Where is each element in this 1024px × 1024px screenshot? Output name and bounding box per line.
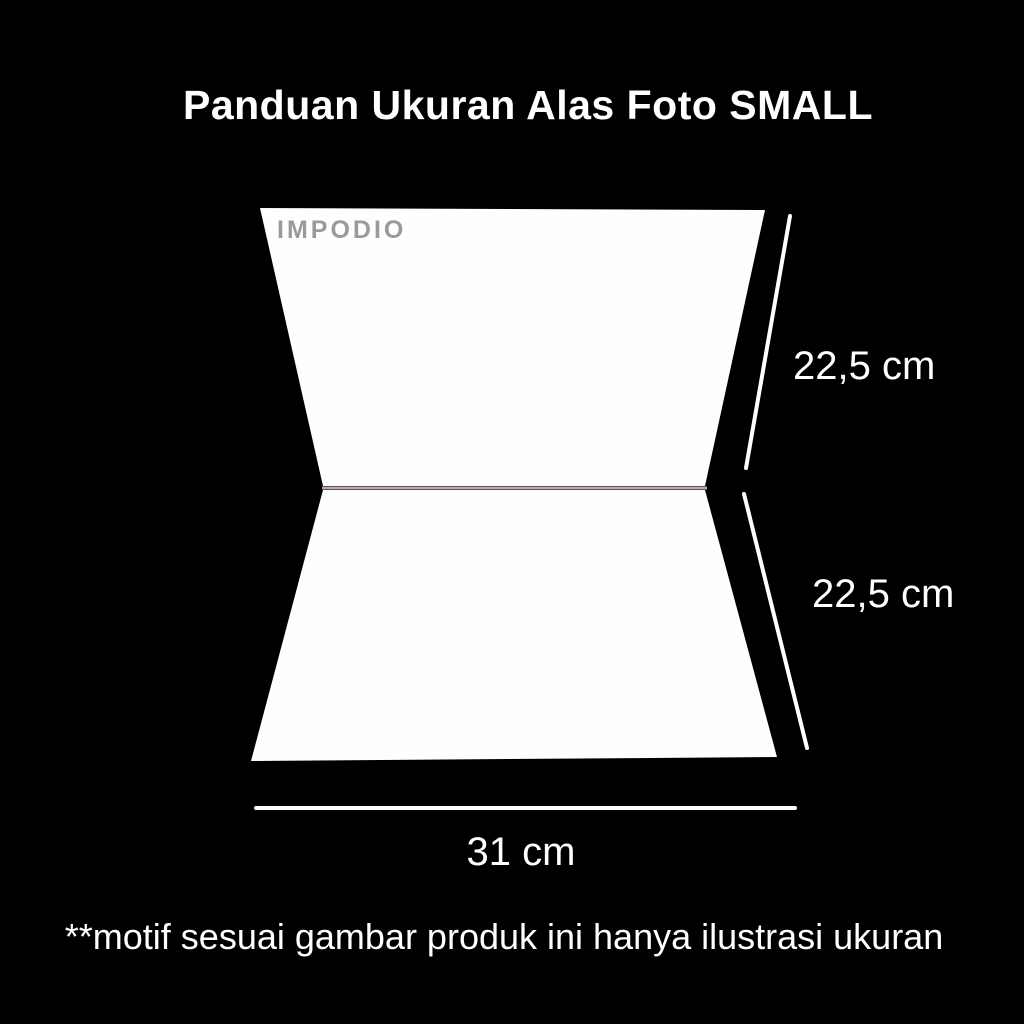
mat-top-panel bbox=[260, 208, 765, 486]
mat-bottom-panel bbox=[251, 490, 777, 761]
size-guide-image: Panduan Ukuran Alas Foto SMALL IMPODIO 2… bbox=[0, 0, 1024, 1024]
folded-mat-diagram: IMPODIO 22,5 cm 22,5 cm 31 cm bbox=[0, 0, 1024, 1024]
dimension-label-bottom-height: 22,5 cm bbox=[812, 572, 954, 617]
dimension-label-width: 31 cm bbox=[467, 830, 576, 875]
dimension-label-top-height: 22,5 cm bbox=[793, 344, 935, 389]
disclaimer-note: **motif sesuai gambar produk ini hanya i… bbox=[65, 916, 943, 958]
brand-watermark: IMPODIO bbox=[277, 216, 406, 245]
